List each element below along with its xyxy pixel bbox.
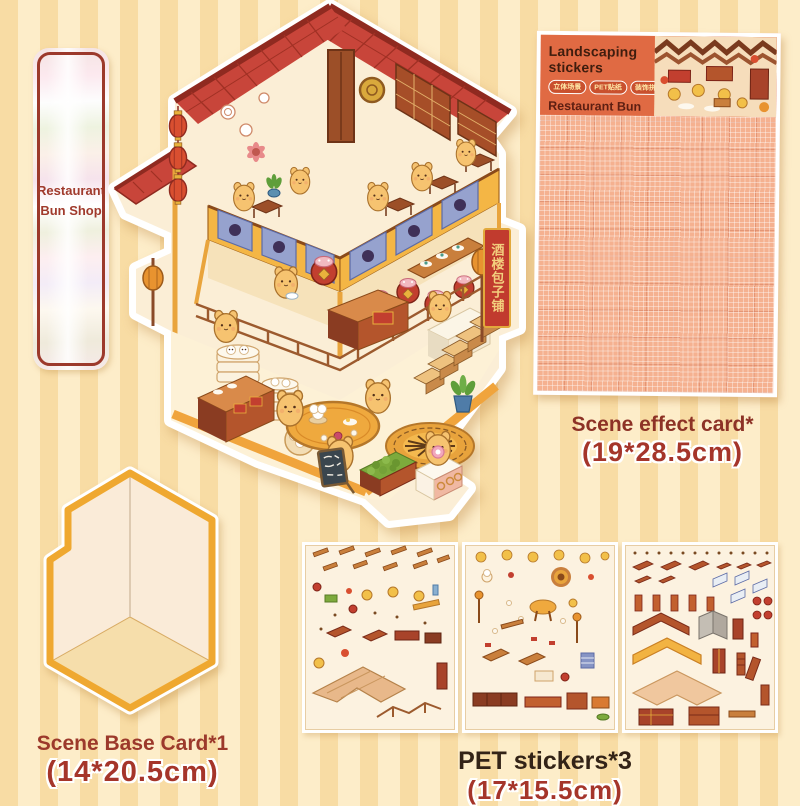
scene-base-card-title: Scene Base Card*1	[5, 732, 260, 756]
shop-banner: 酒楼包子铺	[483, 228, 511, 328]
scene-base-card-image	[42, 462, 227, 722]
mini-rug	[551, 567, 571, 587]
package-thumbnail-art	[654, 36, 777, 117]
pet-stickers-size: (17*15.5cm)	[415, 776, 675, 806]
mini-round-table	[530, 600, 556, 621]
sheet1-art	[305, 545, 455, 730]
scene-effect-card-size: (19*28.5cm)	[535, 437, 790, 468]
pet-stickers-label: PET stickers*3 (17*15.5cm)	[415, 747, 675, 806]
restaurant-scene-diecut-image	[78, 0, 528, 535]
shop-banner-text: 酒楼包子铺	[488, 243, 507, 313]
badge-pet-sticker: PET贴纸	[589, 80, 627, 94]
hanging-lanterns	[169, 106, 186, 204]
pet-sticker-sheet-2	[462, 542, 618, 733]
scene-base-card-size: (14*20.5cm)	[5, 756, 260, 789]
badge-3d-scene: 立体场景	[548, 80, 586, 94]
l-floor-piece	[313, 667, 405, 702]
package-badges: 立体场景 PET贴纸 装饰拼贴	[548, 80, 658, 95]
scene-base-card-label: Scene Base Card*1 (14*20.5cm)	[5, 732, 260, 789]
product-listing-image: { "bookmark": { "title_line1": "Restaura…	[0, 0, 800, 800]
pet-sticker-sheet-3	[622, 542, 778, 733]
package-subtitle: Restaurant Bun Shop	[548, 99, 658, 117]
round-window	[360, 78, 384, 102]
sheet3-art	[625, 545, 775, 730]
pet-sticker-sheet-1	[302, 542, 458, 733]
l-floor-piece	[633, 671, 721, 705]
scene-effect-card-package: Landscaping stickers 立体场景 PET贴纸 装饰拼贴 Res…	[533, 31, 781, 398]
l-wall-piece	[633, 638, 701, 664]
pet-stickers-title: PET stickers*3	[415, 747, 675, 776]
package-header: Landscaping stickers 立体场景 PET贴纸 装饰拼贴 Res…	[540, 35, 777, 117]
package-title: Landscaping stickers	[548, 43, 658, 76]
sheet2-art	[465, 545, 615, 730]
folding-screen	[699, 611, 727, 639]
scene-effect-card-label: Scene effect card* (19*28.5cm)	[535, 413, 790, 468]
scene-effect-card-title: Scene effect card*	[535, 413, 790, 437]
